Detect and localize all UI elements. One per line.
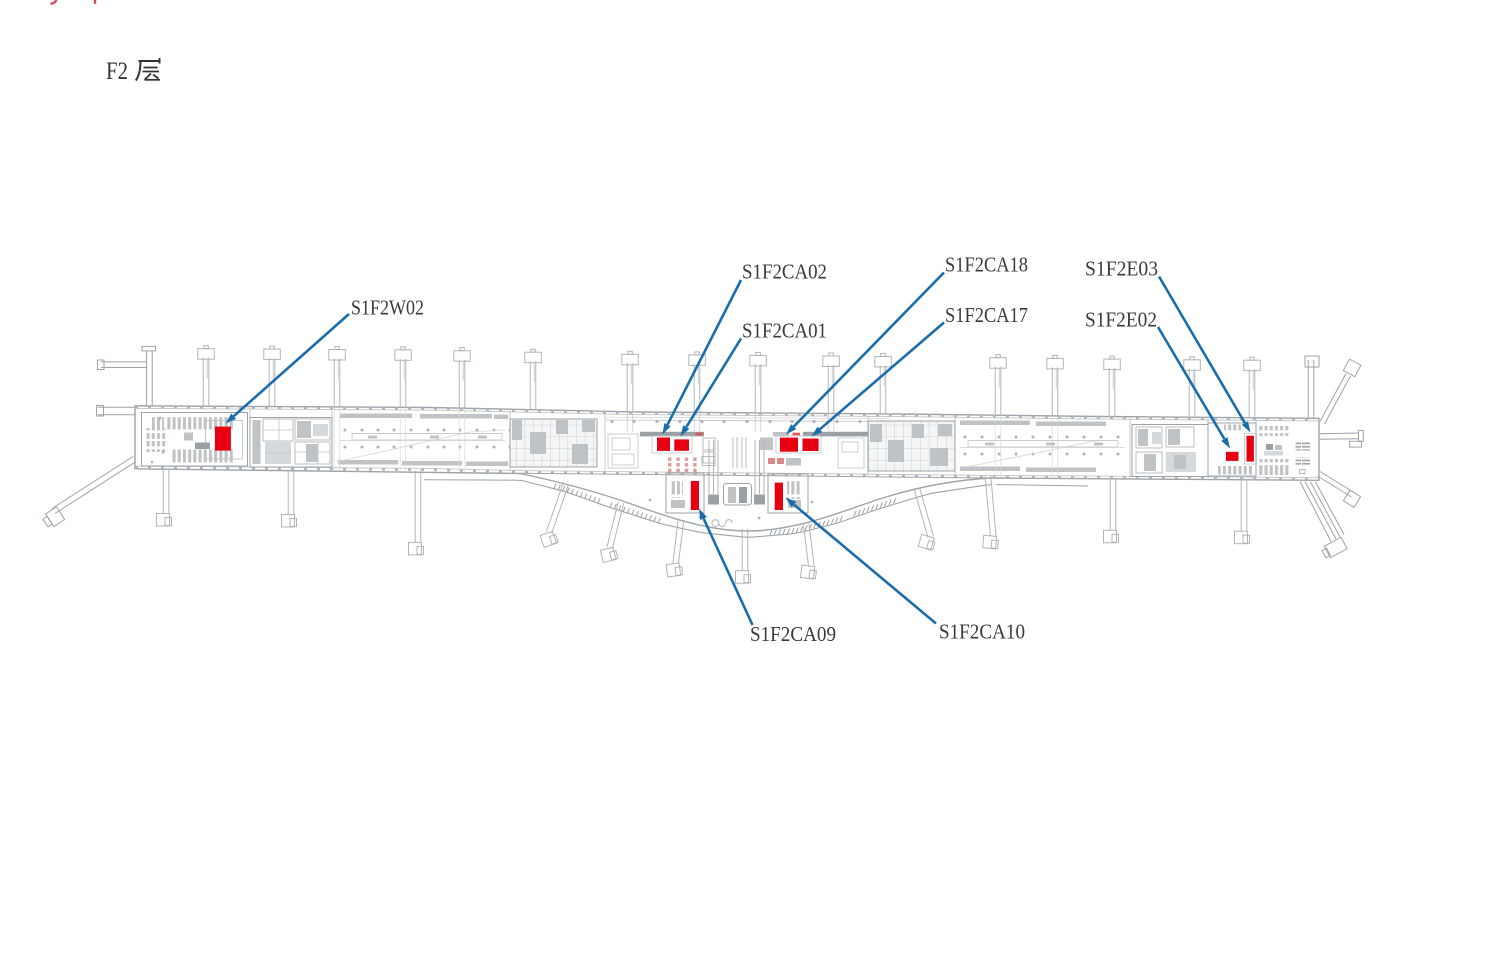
svg-text:S1F2CA02: S1F2CA02 bbox=[742, 260, 827, 284]
svg-text:S1F2E03: S1F2E03 bbox=[1085, 257, 1158, 281]
svg-text:S1F2CA18: S1F2CA18 bbox=[945, 253, 1028, 277]
svg-text:S1F2CA10: S1F2CA10 bbox=[939, 620, 1025, 644]
svg-text:S1F2CA09: S1F2CA09 bbox=[750, 622, 836, 646]
svg-text:S1F2W02: S1F2W02 bbox=[351, 296, 424, 320]
svg-text:S1F2CA17: S1F2CA17 bbox=[945, 303, 1028, 327]
svg-text:S1F2E02: S1F2E02 bbox=[1085, 308, 1157, 332]
svg-text:F2: F2 bbox=[106, 58, 128, 85]
svg-text:S1F2CA01: S1F2CA01 bbox=[742, 319, 827, 343]
